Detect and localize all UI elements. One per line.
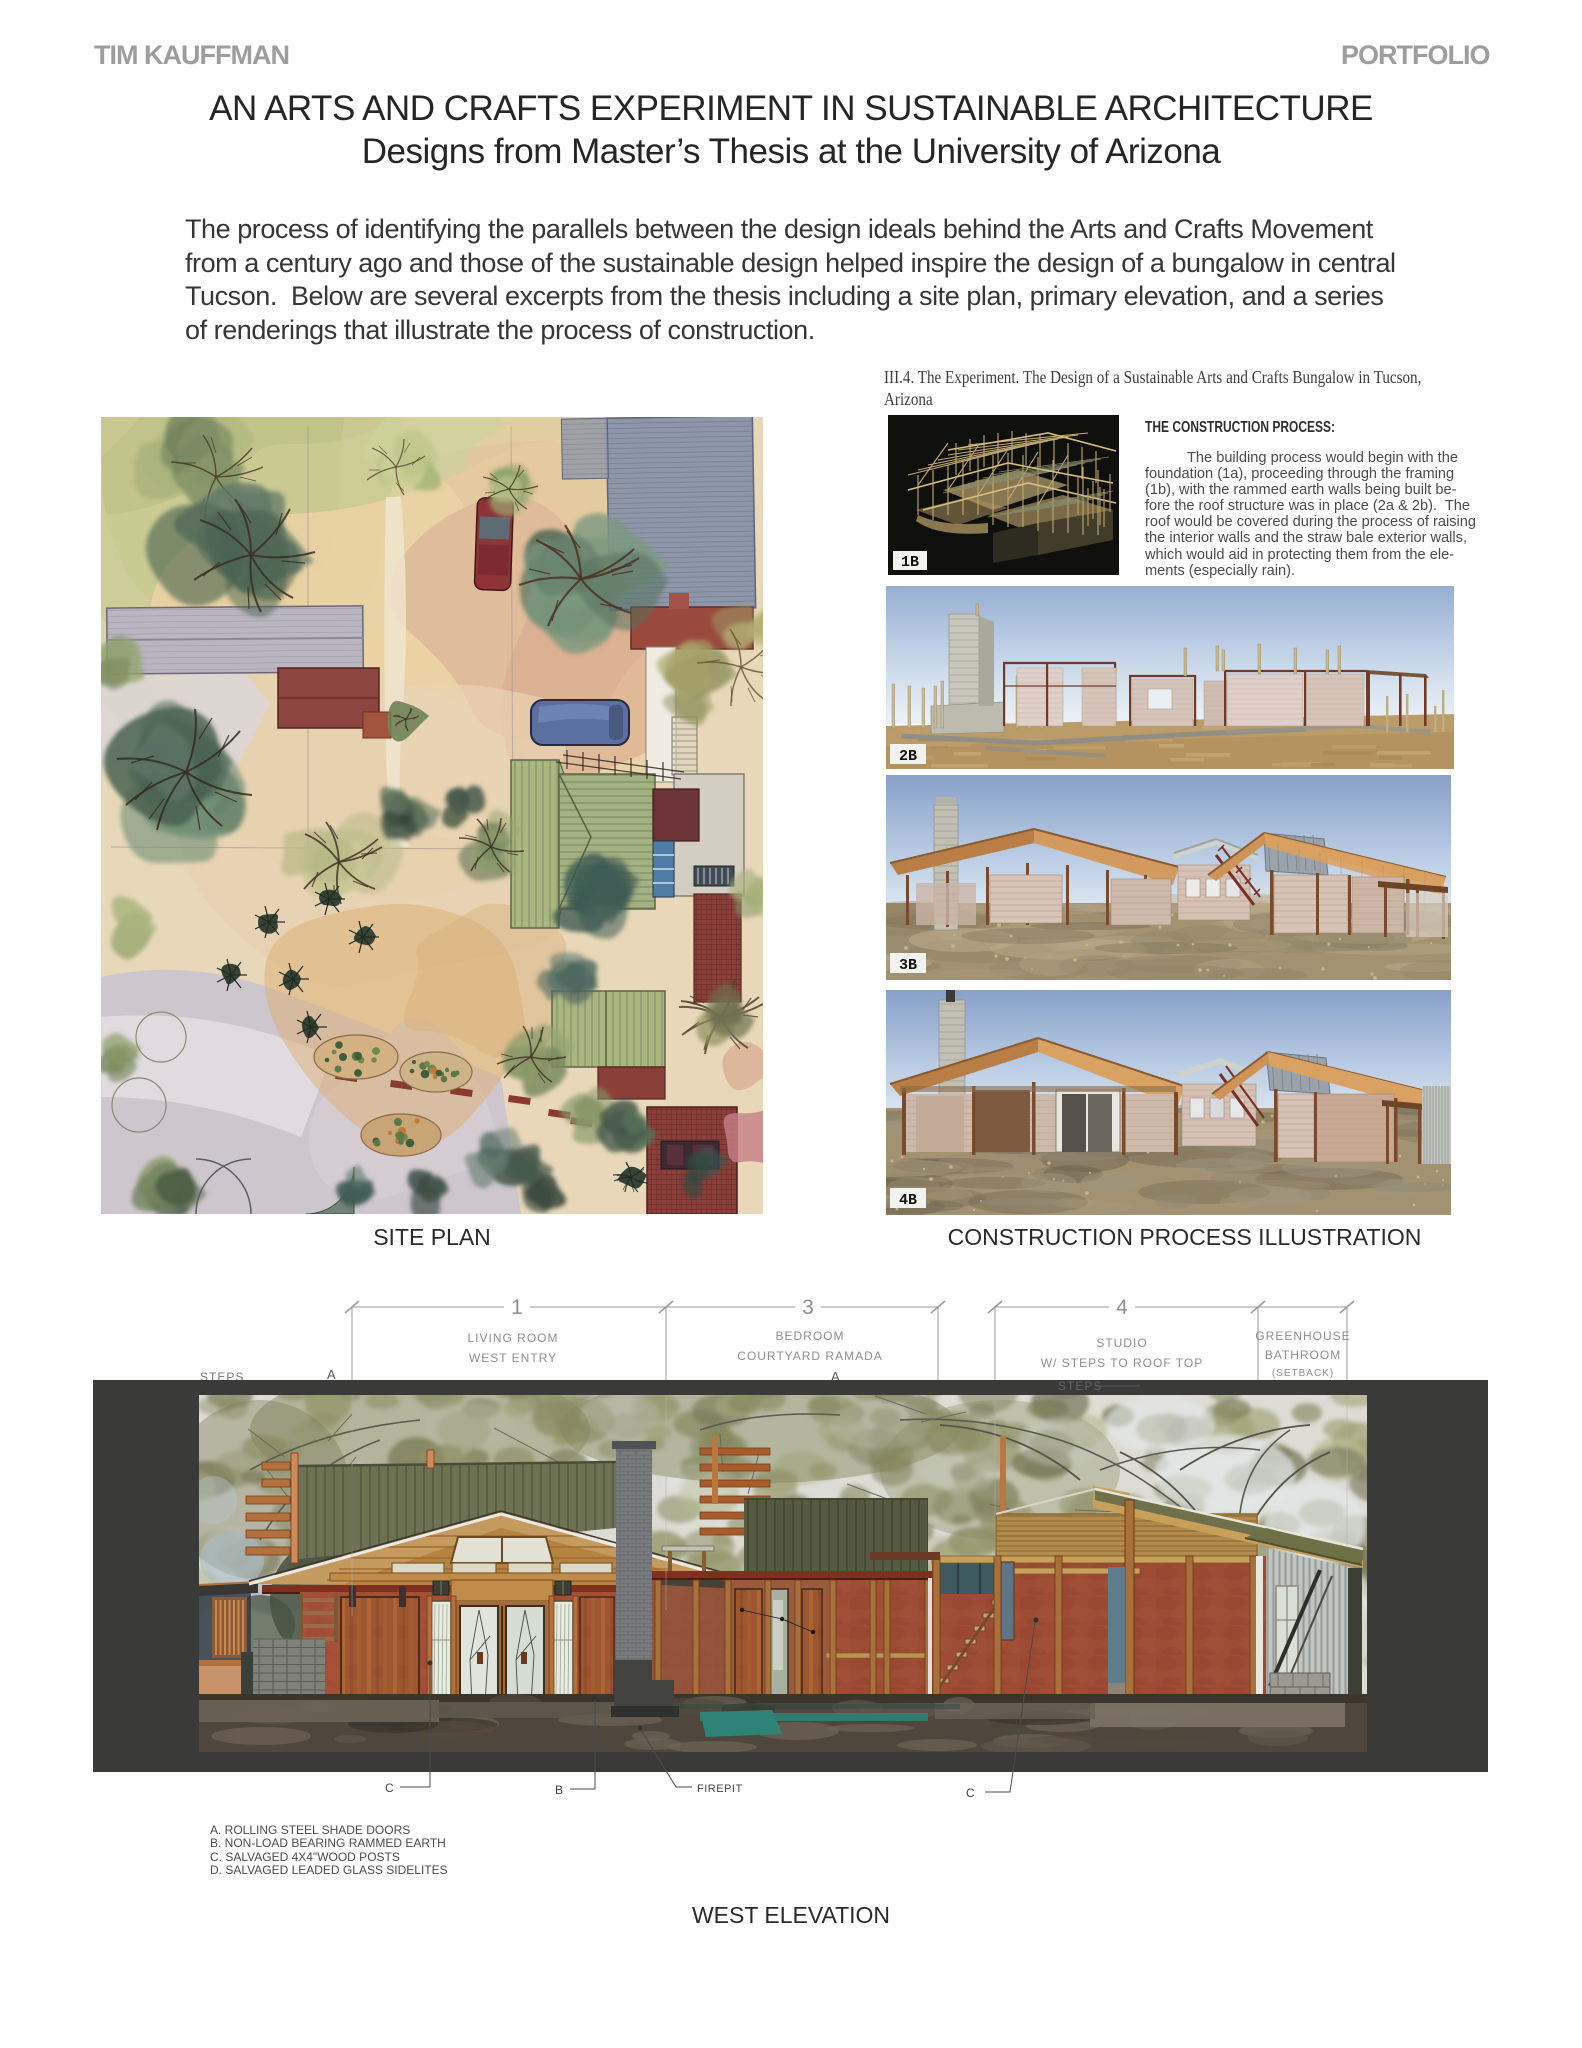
svg-text:(SETBACK): (SETBACK) <box>1272 1368 1334 1379</box>
svg-text:3B: 3B <box>899 957 917 974</box>
svg-text:C: C <box>385 1781 394 1795</box>
svg-text:GREENHOUSE: GREENHOUSE <box>1255 1329 1350 1343</box>
svg-text:LIVING ROOM: LIVING ROOM <box>467 1331 558 1345</box>
svg-text:WEST ENTRY: WEST ENTRY <box>469 1351 557 1365</box>
svg-text:STUDIO: STUDIO <box>1096 1336 1147 1350</box>
svg-text:4: 4 <box>1116 1296 1128 1319</box>
svg-text:FIREPIT: FIREPIT <box>697 1783 743 1795</box>
svg-text:1B: 1B <box>901 554 919 571</box>
svg-text:3: 3 <box>802 1296 814 1319</box>
svg-text:2B: 2B <box>899 748 917 765</box>
svg-text:B: B <box>555 1783 563 1797</box>
svg-text:BATHROOM: BATHROOM <box>1265 1348 1341 1362</box>
svg-text:4B: 4B <box>899 1192 917 1209</box>
svg-text:BEDROOM: BEDROOM <box>775 1329 844 1343</box>
svg-text:C: C <box>966 1786 975 1800</box>
svg-text:W/ STEPS TO ROOF TOP: W/ STEPS TO ROOF TOP <box>1041 1356 1203 1370</box>
svg-text:1: 1 <box>511 1296 523 1319</box>
svg-text:A: A <box>327 1367 336 1382</box>
svg-text:COURTYARD RAMADA: COURTYARD RAMADA <box>737 1349 883 1363</box>
